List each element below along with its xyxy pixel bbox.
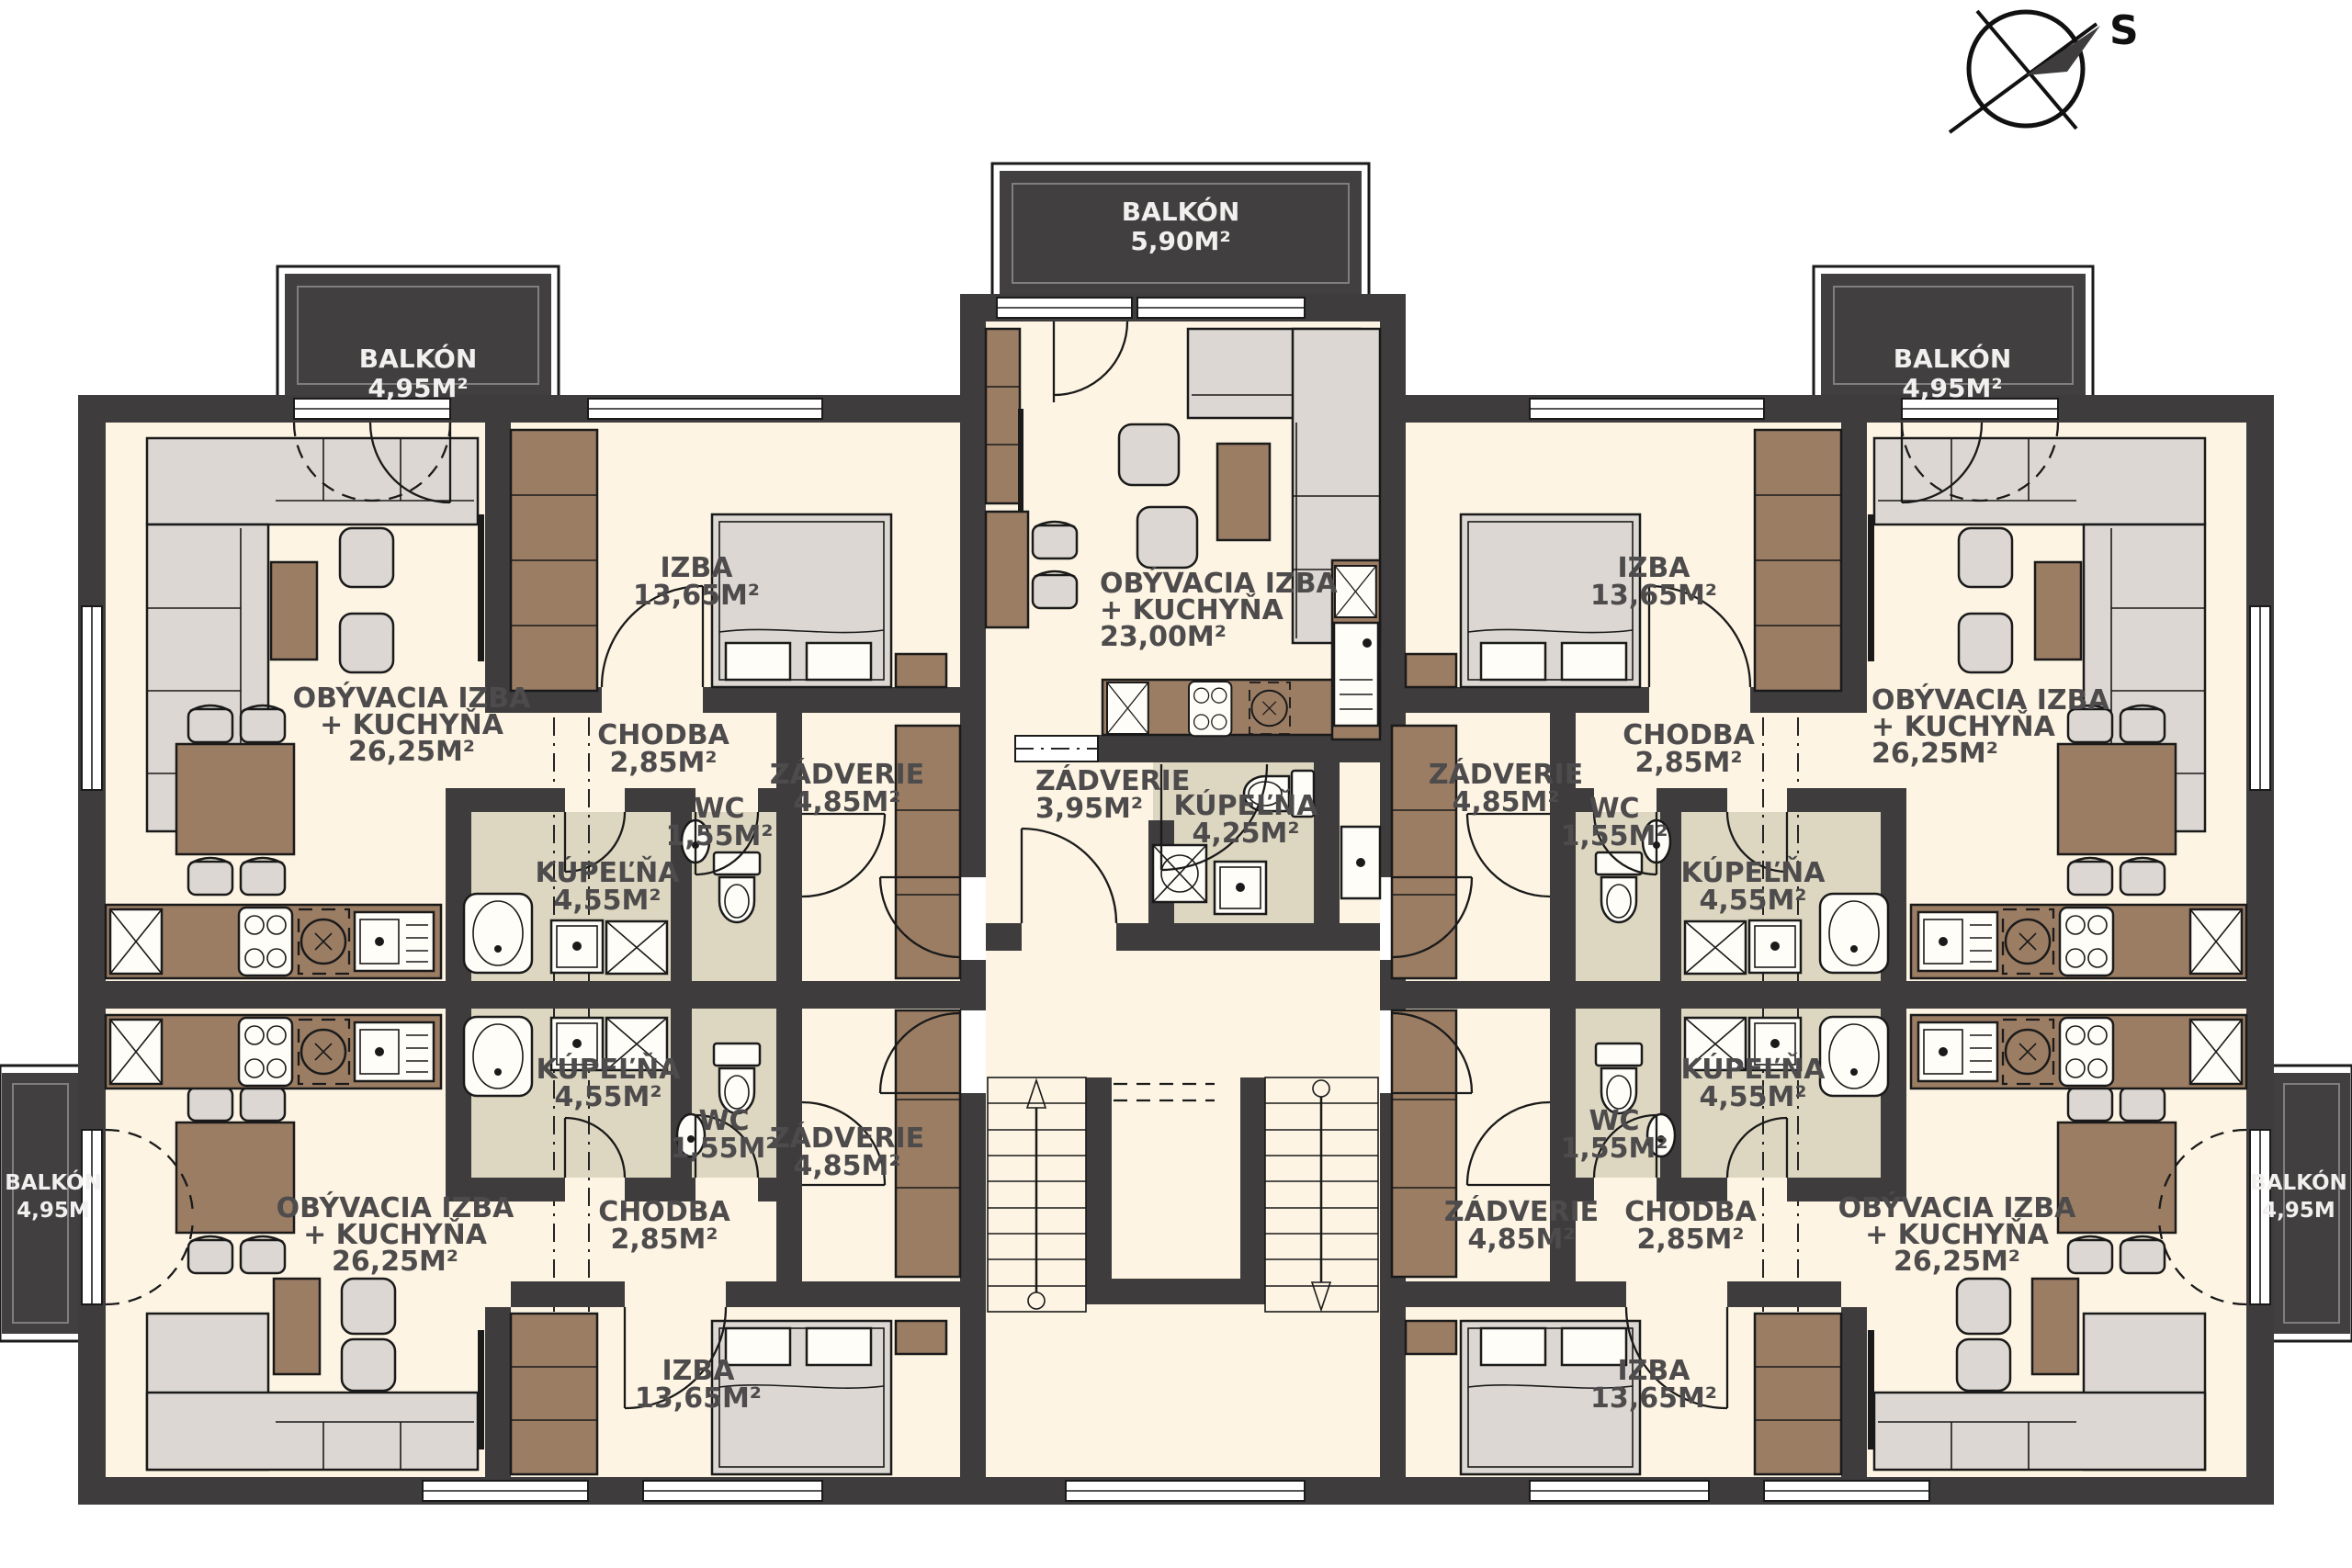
nightstand [896,654,946,687]
chair [2068,858,2112,895]
room-area: 13,65M² [633,580,760,612]
balcony-label: BALKÓN [1122,196,1240,227]
room-area: 2,85M² [609,747,717,779]
wardrobe [1755,1314,1841,1474]
sofa [1874,1393,2205,1470]
toilet-symbol [714,852,760,922]
stove-symbol [1189,682,1231,736]
balcony-area: 4,95M [2262,1199,2335,1223]
pouf [1119,424,1179,485]
floor-plan-drawing: OBÝVACIA IZBA + KUCHYŇA 26,25M² IZBA 13,… [0,0,2352,1568]
room-area: 2,85M² [610,1224,718,1256]
balcony-area: 4,95M² [367,373,468,403]
pouf [1137,507,1197,568]
pillow [1562,643,1626,680]
chair [1033,571,1077,608]
bathtub-symbol [464,894,532,973]
room-area: 4,85M² [793,1150,900,1182]
room-area: 26,25M² [1894,1246,2020,1278]
fridge-symbol [110,1020,162,1084]
fridge-symbol [2190,909,2242,974]
stove-symbol [239,1018,292,1086]
stove-symbol [2060,908,2113,976]
floor-plan-page: OBÝVACIA IZBA + KUCHYŇA 26,25M² IZBA 13,… [0,0,2352,1568]
nightstand [896,1321,946,1354]
washing-machine-symbol [1685,921,1746,974]
toilet-symbol [1596,1043,1642,1113]
room-area: 26,25M² [1871,738,1998,770]
chair [241,1236,285,1273]
pouf [340,528,393,587]
balcony-label: BALKÓN [359,343,478,374]
room-area: 1,55M² [670,1133,777,1165]
chair [188,1236,232,1273]
coffee-table [1217,444,1270,540]
tall-cabinet [1334,623,1378,726]
bathtub-symbol [464,1017,532,1096]
bathtub-symbol [1820,1017,1888,1096]
chair [241,705,285,742]
room-area: 26,25M² [332,1246,458,1278]
toilet-symbol [714,1043,760,1113]
tv [1018,409,1023,524]
chair [2120,1236,2165,1273]
chair [2120,705,2165,742]
dining-table [986,512,1028,627]
tv [1868,1330,1874,1450]
pouf [342,1339,395,1391]
washbasin-symbol [1749,920,1801,973]
room-area: 4,55M² [1699,885,1806,917]
room-area: 4,85M² [1467,1224,1575,1256]
sofa [147,438,478,525]
pillow [807,643,871,680]
tv [1868,514,1874,661]
room-area: 26,25M² [348,736,475,768]
room-area: 23,00M² [1100,621,1227,653]
kitchen-sink-symbol [1918,1022,1997,1081]
pouf [340,614,393,672]
coffee-table [2032,1279,2078,1374]
stove-symbol [239,908,292,976]
pillow [807,1328,871,1365]
kitchen-sink-symbol [355,1022,434,1081]
pouf [1957,1339,2010,1391]
room-area: 3,95M² [1035,793,1143,825]
stove-symbol [2060,1018,2113,1086]
nightstand [1406,1321,1456,1354]
chair [2120,858,2165,895]
fridge-symbol [110,909,162,974]
compass: S [1950,7,2139,132]
coffee-table [2035,562,2081,660]
pouf [1959,528,2012,587]
tv [478,514,484,661]
pillow [726,643,790,680]
tv [478,1330,484,1450]
room-area: 4,25M² [1192,818,1299,850]
closet [1392,1010,1456,1277]
chair [188,705,232,742]
room-area: 2,85M² [1636,1224,1744,1256]
pillow [1481,1328,1545,1365]
pillow [726,1328,790,1365]
pouf [1957,1279,2010,1334]
fridge-symbol [2190,1020,2242,1084]
room-area: 4,85M² [1452,786,1559,818]
fridge-symbol [1107,682,1148,734]
chair [1033,522,1077,558]
room-area: 4,55M² [554,1081,661,1113]
compass-north-label: S [2109,7,2139,54]
washbasin-symbol [551,920,603,973]
compass-cross-lines [1950,11,2097,132]
room-area: 2,85M² [1634,747,1742,779]
wardrobe [511,1314,597,1474]
balcony-area: 4,95M² [1902,373,2002,403]
coffee-table [274,1279,320,1374]
kitchen-sink-symbol [1918,912,1997,971]
chair [241,858,285,895]
balcony-label: BALKÓN [1894,343,2012,374]
sofa [1874,438,2205,525]
room-area: 13,65M² [635,1382,762,1415]
balcony-area: 5,90M² [1130,226,1230,256]
nightstand [1406,654,1456,687]
balcony-area: 4,95M [17,1199,90,1223]
room-area: 4,55M² [553,885,661,917]
chair [188,858,232,895]
fridge-symbol [1335,566,1376,617]
room-area: 4,55M² [1699,1081,1806,1113]
pouf [342,1279,395,1334]
chair [2068,1236,2112,1273]
washing-machine-symbol [606,921,667,974]
washbasin-symbol [1215,862,1266,914]
room-area: 13,65M² [1590,1382,1717,1415]
closet [986,329,1020,503]
dining-table [176,744,294,854]
kitchen-sink-symbol [355,912,434,971]
room-area: 13,65M² [1590,580,1717,612]
dining-table [2058,744,2176,854]
pillow [1481,643,1545,680]
coffee-table [271,562,317,660]
sofa [147,1393,478,1470]
balcony-label: BALKÓN [2250,1169,2347,1195]
pillow [1562,1328,1626,1365]
pouf [1959,614,2012,672]
room-area: 1,55M² [1560,1133,1668,1165]
room-area: 1,55M² [1560,820,1668,852]
room-area: 1,55M² [665,820,773,852]
room-area: 4,85M² [793,786,900,818]
balcony-label: BALKÓN [5,1169,102,1195]
bathtub-symbol [1820,894,1888,973]
